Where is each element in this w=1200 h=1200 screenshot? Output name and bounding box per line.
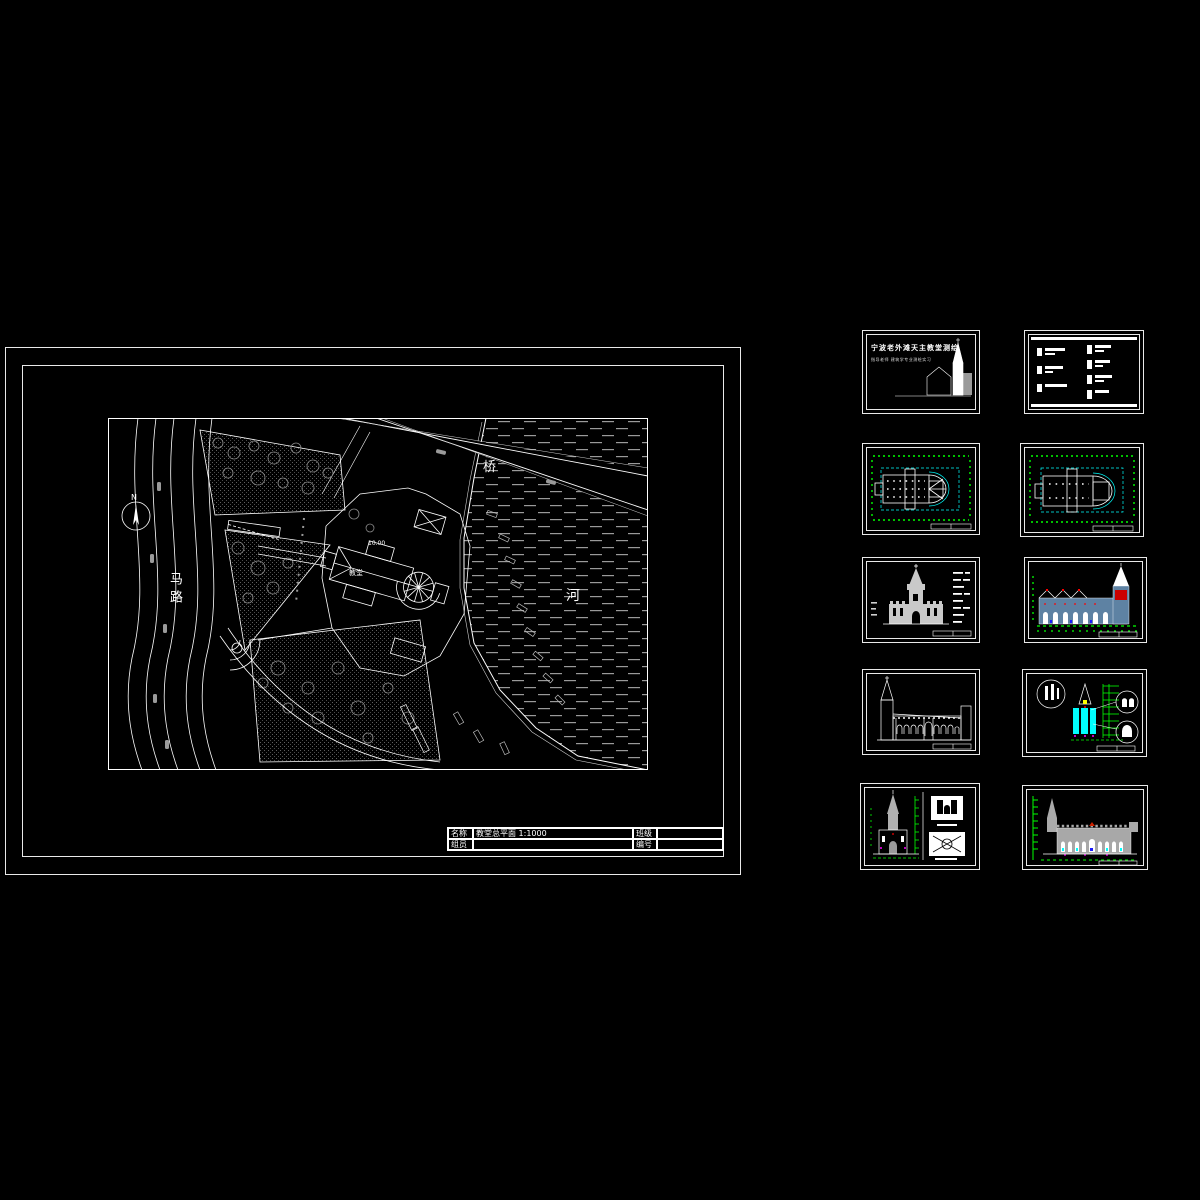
title-block: 名称 教堂总平面 1:1000 班级 组员 编号 <box>447 827 724 851</box>
title-block-group-value <box>473 839 633 850</box>
title-block-group-label: 组员 <box>448 839 473 850</box>
level-label: 10.00 <box>368 541 385 547</box>
title-block-name-label: 名称 <box>448 828 473 839</box>
floor-plan-1-graphic <box>867 448 975 530</box>
sheet-section-elevation-color[interactable] <box>1024 557 1147 643</box>
car-symbols <box>150 482 169 749</box>
river-label: 河 <box>566 589 580 603</box>
bridge-label: 桥 <box>483 461 496 474</box>
title-block-class-value <box>657 828 723 839</box>
sheet-side-elevation[interactable] <box>862 669 980 755</box>
sheet-long-elevation[interactable] <box>1022 785 1148 870</box>
north-label: N <box>131 494 137 502</box>
notes-graphic <box>1029 335 1139 409</box>
title-block-class-label: 班级 <box>633 828 657 839</box>
tower-detail-graphic <box>1027 674 1142 752</box>
sheet-tower-detail[interactable] <box>1022 669 1147 757</box>
long-elevation-graphic <box>1027 790 1143 865</box>
floor-plan-2-graphic <box>1025 448 1139 532</box>
sheet-notes[interactable] <box>1024 330 1144 414</box>
section-elevation-graphic <box>1029 562 1142 638</box>
building-label: 教堂 <box>349 570 363 577</box>
sheet-cover[interactable]: 宁波老外滩天主教堂测绘 指导老师 建筑学专业测绘实习 <box>862 330 980 414</box>
sheet-front-elevation[interactable] <box>862 557 980 643</box>
sheet-floor-plan-1[interactable] <box>862 443 980 535</box>
title-block-number-value <box>657 839 723 850</box>
sheet-floor-plan-2[interactable] <box>1020 443 1144 537</box>
side-elevation-graphic <box>867 674 975 750</box>
north-compass-icon <box>122 502 150 530</box>
cover-church-graphic <box>867 335 975 409</box>
title-block-number-label: 编号 <box>633 839 657 850</box>
front-elevation-graphic <box>867 562 975 638</box>
title-block-drawing-title: 教堂总平面 1:1000 <box>473 828 633 839</box>
road-label: 马路 <box>168 572 181 608</box>
tower-elevation-graphic <box>865 788 975 865</box>
sheet-tower-elevation-details[interactable] <box>860 783 980 870</box>
cad-plot-canvas: N 马路 桥 河 10.00 教堂 名称 教堂总平面 1:1000 班级 组员 … <box>0 0 1200 1200</box>
